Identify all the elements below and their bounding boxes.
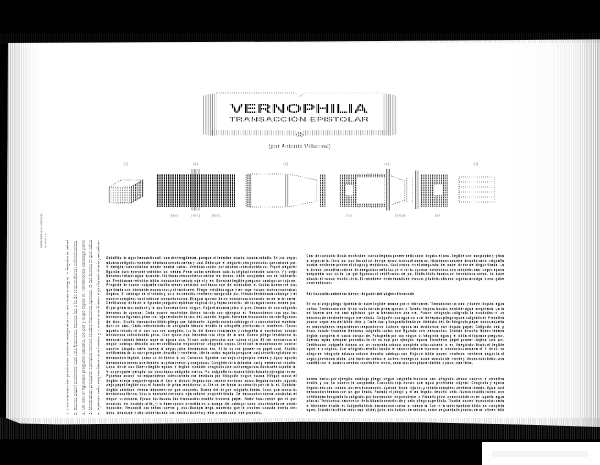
svg-text:(sol): (sol)	[345, 214, 351, 218]
svg-text:(4): (4)	[385, 161, 391, 166]
svg-text:(solapa): (solapa)	[395, 214, 407, 218]
svg-text:TRANSACCIÓN EPISTOLAR: TRANSACCIÓN EPISTOLAR	[229, 115, 370, 123]
svg-text:(2): (2)	[193, 161, 199, 166]
svg-text:(3): (3)	[284, 161, 290, 166]
svg-text:(5): (5)	[473, 161, 479, 166]
svg-text:(tapa): (tapa)	[212, 214, 220, 218]
svg-text:(lomo): (lomo)	[191, 214, 200, 218]
svg-text:(sol): (sol)	[435, 214, 441, 218]
svg-text:(1): (1)	[123, 161, 129, 166]
svg-text:(tapa): (tapa)	[170, 214, 178, 218]
